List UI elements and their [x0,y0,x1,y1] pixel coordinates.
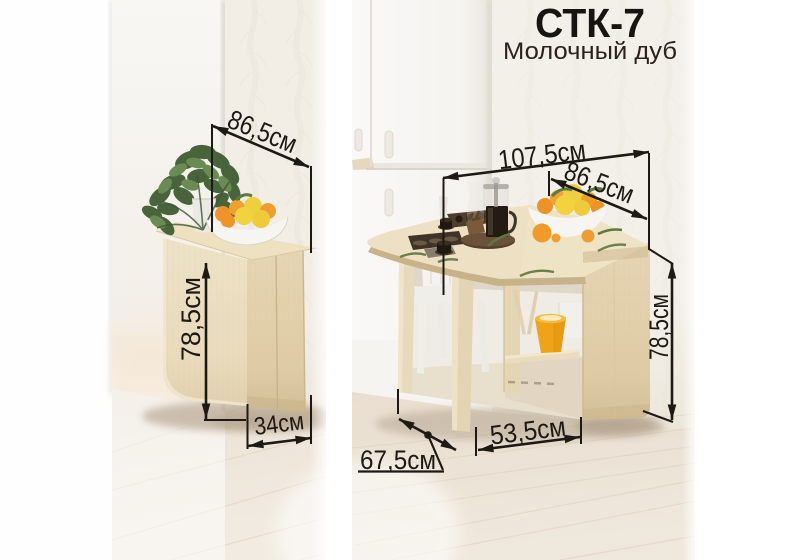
svg-text:78,5см: 78,5см [644,294,674,360]
svg-text:78,5см: 78,5см [176,277,206,361]
svg-text:67,5см: 67,5см [360,445,436,475]
svg-text:Молочный дуб: Молочный дуб [503,38,677,65]
